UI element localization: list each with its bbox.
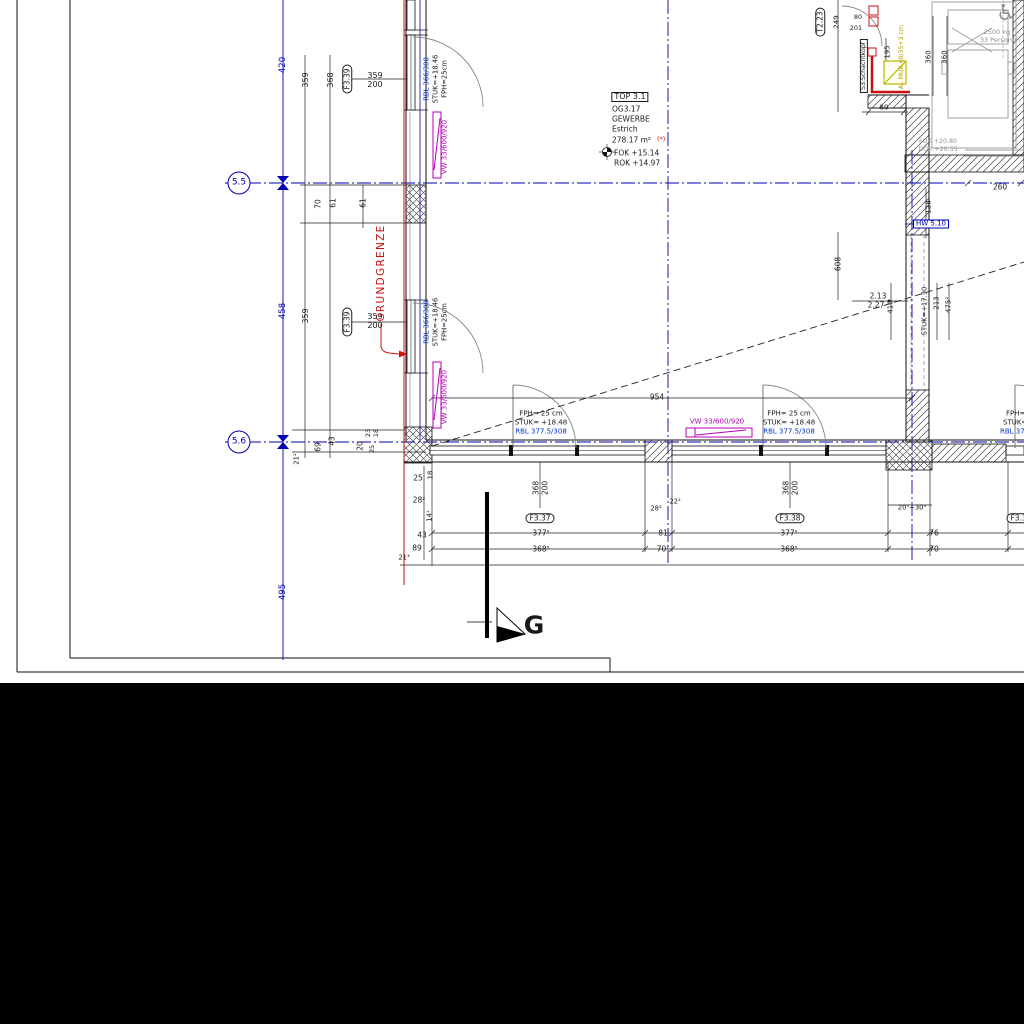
dim-43: 43 <box>417 531 427 539</box>
rbl-window-mid: RBL 366/308 <box>424 300 431 344</box>
fph-door-1: FPH= 25 cm <box>519 411 562 418</box>
window-tag-f337: F3.37 <box>525 513 554 523</box>
dim-25-corner: 25 <box>369 445 376 453</box>
rbl-door-1: RBL 377.5/308 <box>515 429 567 436</box>
rbl-door-2: RBL 377.5/308 <box>763 429 815 436</box>
dim-89: 89 <box>412 544 422 552</box>
stuk-door-2: STUK= +18.48 <box>763 420 815 427</box>
dim-21-2: 21² <box>294 453 301 464</box>
room-fok: FOK +15.14 <box>614 149 659 157</box>
vw-tag-bottom: VW 33/600/920 <box>690 419 744 426</box>
dim-22-2-pier: 22² <box>669 499 680 506</box>
dim-61-a: 61 <box>329 198 337 208</box>
dim-20-5-30-5: 20⁵+30⁵ <box>898 505 926 512</box>
lift-capacity: 2500 kg / <box>984 29 1015 36</box>
dim-70: 70 <box>314 199 322 209</box>
fph-door-3: FPH= 25 cm <box>1006 411 1024 418</box>
dim-25: 25 <box>413 474 423 482</box>
dim-2-27: 2.27 <box>868 301 885 309</box>
section-label-g: G <box>524 613 545 638</box>
dim-18-corner: 18 <box>373 429 380 437</box>
rbl-window-top: RBL 366/308 <box>424 57 431 101</box>
dim-458: 458 <box>279 303 288 319</box>
grid-bubble-5-6: 5.6 <box>228 431 251 454</box>
dim-360-a: 360 <box>926 50 933 63</box>
dim-608: 608 <box>834 257 842 271</box>
dim-70-b: 70 <box>929 545 939 553</box>
dim-69: 69 <box>314 442 322 452</box>
stuk-door-3: STUK= +18.48 <box>1003 420 1024 427</box>
dim-213: 213 <box>934 296 941 309</box>
stuk-17-30: STUK=+17.30 <box>922 287 929 336</box>
room-tag: TOP 3.1 <box>611 92 648 102</box>
window-tag-f339-mid: F3.39 <box>342 307 352 336</box>
window-dim-200-mid: 200 <box>367 322 382 330</box>
dim-14-1: 14¹ <box>427 510 434 521</box>
dim-360-b: 360 <box>942 50 949 63</box>
rbl-door-3: RBL 377.5/308 <box>1000 429 1024 436</box>
dim-76: 76 <box>929 529 939 537</box>
dim-128: 128 <box>926 200 933 213</box>
window-dim-359-mid: 359 <box>367 313 382 321</box>
stuk-window-mid: STUK=+18.46 <box>433 298 440 347</box>
dim-377-5-b: 377⁵ <box>780 529 797 537</box>
dim-80-shaft: 80 <box>880 105 889 112</box>
lift-persons: 33 Personen <box>980 37 1020 44</box>
room-area: 278.17 m² <box>612 136 651 144</box>
room-use: GEWERBE <box>612 115 650 123</box>
stuk-door-1: STUK= +18.48 <box>515 420 567 427</box>
dim-200-door2: 200 <box>791 481 799 495</box>
fph-window-top: FPH=25cm <box>442 60 449 98</box>
grundgrenze-label: GRUNDGRENZE <box>376 224 387 321</box>
dim-80-top: 80 <box>854 14 862 21</box>
dim-368-door2: 368 <box>782 481 790 495</box>
fok-20-80: FOK +20.80 <box>919 139 957 145</box>
dim-359-mid: 359 <box>302 308 310 323</box>
room-number: OG3.17 <box>612 105 640 113</box>
dim-195: 195 <box>885 46 892 59</box>
dim-2-13: 2.13 <box>870 292 887 300</box>
dim-495: 495 <box>279 584 288 600</box>
dim-43-corner: 43 <box>328 436 336 446</box>
wheelchair-icon: ♿ <box>996 3 1016 25</box>
dim-420: 420 <box>279 57 288 73</box>
plan-viewer: 5.55.6420458495359368F3.39359200RBL 366/… <box>0 0 1024 1024</box>
dim-70-1: 70¹ <box>657 545 670 553</box>
dim-21-3: 21³ <box>398 555 409 562</box>
al-muk-note: AL MUK 40/35+3 cm <box>899 25 905 89</box>
dim-20: 20 <box>356 441 364 451</box>
dim-28-2: 28² <box>413 496 426 504</box>
fph-window-mid: FPH=25cm <box>442 303 449 341</box>
dim-368-top: 368 <box>327 72 335 87</box>
dim-18: 18 <box>428 471 435 480</box>
hw-tag: HW 5.10 <box>913 220 949 229</box>
dim-81: 81 <box>658 529 668 537</box>
grid-bubble-5-5: 5.5 <box>228 172 251 195</box>
fph-door-2: FPH= 25 cm <box>767 411 810 418</box>
letterbox-black-area <box>0 683 1024 1024</box>
schachtkopf-tag: S3.Schachtkopf <box>860 39 868 93</box>
dim-368-5-a: 368⁵ <box>532 545 549 553</box>
vw-tag-mid: VW 33/600/920 <box>442 370 449 424</box>
dim-410: 410 <box>888 300 895 313</box>
dim-61-b: 61 <box>359 198 367 208</box>
dim-28-2-pier: 28² <box>650 506 661 513</box>
annotation-layer: 5.55.6420458495359368F3.39359200RBL 366/… <box>0 0 1024 683</box>
room-rok: ROK +14.97 <box>614 159 660 167</box>
window-dim-359-top: 359 <box>367 72 382 80</box>
dim-954: 954 <box>650 393 664 401</box>
room-area-note: (*) <box>657 136 665 143</box>
vw-tag-top: VW 33/600/920 <box>442 120 449 174</box>
window-tag-f339-right: F3.39 <box>1006 513 1024 523</box>
dim-201: 201 <box>850 25 862 32</box>
dok-20-55: DOK +20.55 <box>918 147 957 153</box>
dim-475-2: 475² <box>946 297 953 313</box>
window-dim-200-top: 200 <box>367 81 382 89</box>
dim-368-door1: 368 <box>532 481 540 495</box>
dim-23: 23 <box>365 429 372 437</box>
dim-368-5-b: 368⁵ <box>780 545 797 553</box>
dim-377-5-a: 377⁵ <box>532 529 549 537</box>
dim-359-top: 359 <box>302 72 310 87</box>
room-floor-finish: Estrich <box>612 125 638 133</box>
dim-249: 249 <box>834 15 841 28</box>
door-tag-t223: T2.23 <box>815 7 825 36</box>
stuk-window-top: STUK=+18.46 <box>433 55 440 104</box>
window-tag-f338: F3.38 <box>775 513 804 523</box>
dim-200-door1: 200 <box>541 481 549 495</box>
dim-260: 260 <box>993 183 1007 191</box>
window-tag-f339-top: F3.39 <box>342 64 352 93</box>
